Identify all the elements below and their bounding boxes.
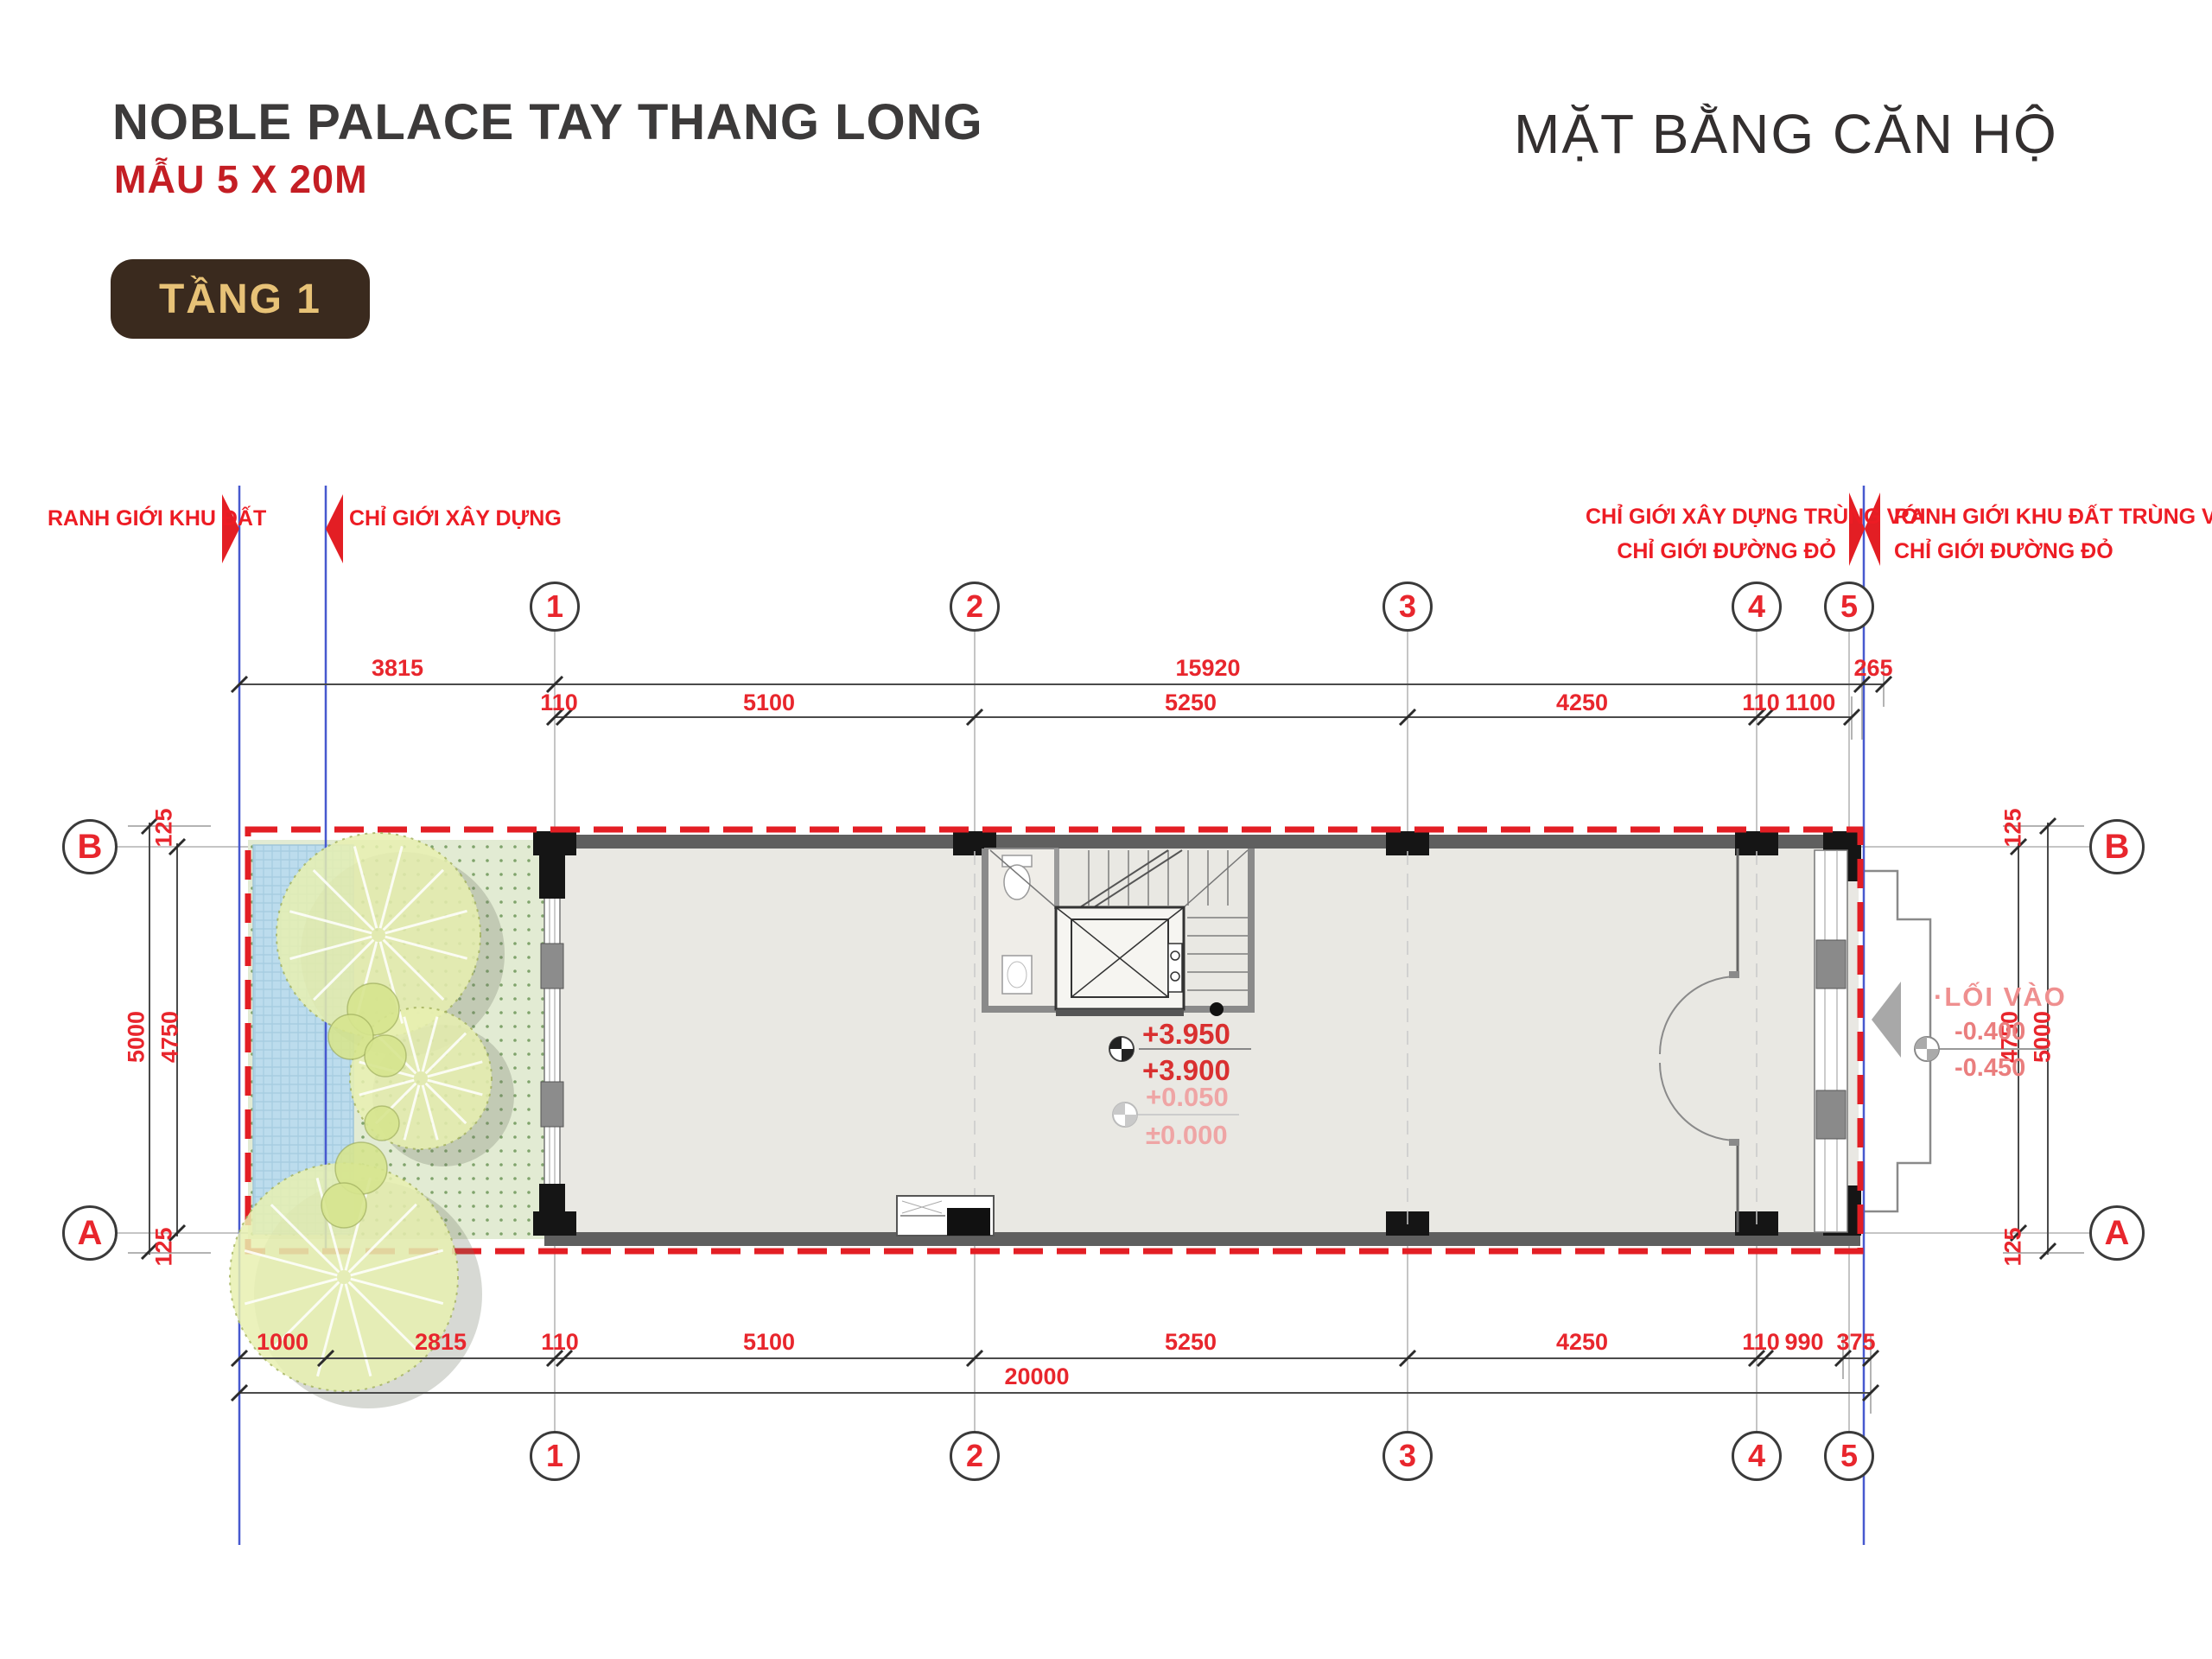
level-upper-1: +3.950	[1142, 1018, 1230, 1051]
floor-plan-drawing	[0, 0, 2212, 1659]
label-line: CHỈ GIỚI XÂY DỰNG TRÙNG VỚI	[1586, 499, 1836, 534]
dim-total: 20000	[1004, 1363, 1069, 1390]
dim-bottom: 5250	[1165, 1329, 1217, 1356]
label-ranh-gioi-trung-voi: RANH GIỚI KHU ĐẤT TRÙNG VỚI CHỈ GIỚI ĐƯỜ…	[1894, 499, 2212, 569]
label-line: RANH GIỚI KHU ĐẤT TRÙNG VỚI	[1894, 499, 2212, 534]
grid-bubble-1-top: 1	[530, 582, 580, 632]
grid-bubble-3-bottom: 3	[1382, 1431, 1433, 1481]
dim-bottom: 4250	[1556, 1329, 1608, 1356]
grid-bubble-1-bottom: 1	[530, 1431, 580, 1481]
dim-bottom: 990	[1784, 1329, 1823, 1356]
dim-right-outer: 5000	[2030, 1011, 2056, 1063]
level-ground-2: ±0.000	[1146, 1120, 1228, 1151]
label-chi-gioi-xay-dung: CHỈ GIỚI XÂY DỰNG	[349, 501, 562, 536]
dim-top: 3815	[372, 655, 423, 682]
dim-top2: 110	[1742, 690, 1780, 716]
dim-top: 15920	[1175, 655, 1240, 682]
grid-bubble-A-right: A	[2089, 1205, 2145, 1261]
level-entry-2: -0.450	[1955, 1054, 2025, 1083]
dim-top: 265	[1853, 655, 1892, 682]
dim-left-inner: 4750	[157, 1011, 184, 1063]
dim-left-outer: 5000	[124, 1011, 150, 1063]
dim-top2: 1100	[1785, 690, 1836, 716]
dim-bottom: 2815	[415, 1329, 467, 1356]
grid-bubble-4-bottom: 4	[1732, 1431, 1782, 1481]
entrance-label: ·LỐI VÀO	[1934, 982, 2067, 1013]
dim-top2: 5100	[743, 690, 795, 716]
dim-left-edge-bottom: 125	[151, 1227, 178, 1266]
grid-bubble-5-top: 5	[1824, 582, 1874, 632]
bottom-cabinet	[897, 1196, 994, 1236]
grid-bubble-B-right: B	[2089, 819, 2145, 874]
dim-bottom: 375	[1836, 1329, 1875, 1356]
dim-bottom: 5100	[743, 1329, 795, 1356]
label-line: CHỈ GIỚI ĐƯỜNG ĐỎ	[1894, 534, 2212, 569]
grid-bubble-4-top: 4	[1732, 582, 1782, 632]
dim-bottom: 110	[1742, 1329, 1780, 1356]
grid-bubble-2-bottom: 2	[950, 1431, 1000, 1481]
dim-bottom: 1000	[257, 1329, 308, 1356]
level-ground-1: +0.050	[1146, 1082, 1229, 1113]
label-chi-gioi-trung-voi: CHỈ GIỚI XÂY DỰNG TRÙNG VỚI CHỈ GIỚI ĐƯỜ…	[1586, 499, 1836, 569]
label-line: CHỈ GIỚI ĐƯỜNG ĐỎ	[1586, 534, 1836, 569]
level-entry-1: -0.400	[1955, 1018, 2025, 1046]
dim-left-edge-top: 125	[151, 808, 178, 847]
dim-top2: 5250	[1165, 690, 1217, 716]
grid-bubble-A-left: A	[62, 1205, 118, 1261]
dim-bottom: 110	[541, 1329, 579, 1356]
grid-bubble-2-top: 2	[950, 582, 1000, 632]
grid-bubble-B-left: B	[62, 819, 118, 874]
grid-bubble-3-top: 3	[1382, 582, 1433, 632]
dim-right-edge-top: 125	[2000, 808, 2027, 847]
dim-top2: 110	[540, 690, 578, 716]
entrance-arrow-icon	[1872, 982, 1901, 1058]
label-ranh-gioi-khu-dat: RANH GIỚI KHU ĐẤT	[48, 501, 216, 536]
grid-bubble-5-bottom: 5	[1824, 1431, 1874, 1481]
dim-top2: 4250	[1556, 690, 1608, 716]
dim-right-edge-bottom: 125	[2000, 1227, 2027, 1266]
floor-plan-page: { "header": { "title": "NOBLE PALACE TAY…	[0, 0, 2212, 1659]
